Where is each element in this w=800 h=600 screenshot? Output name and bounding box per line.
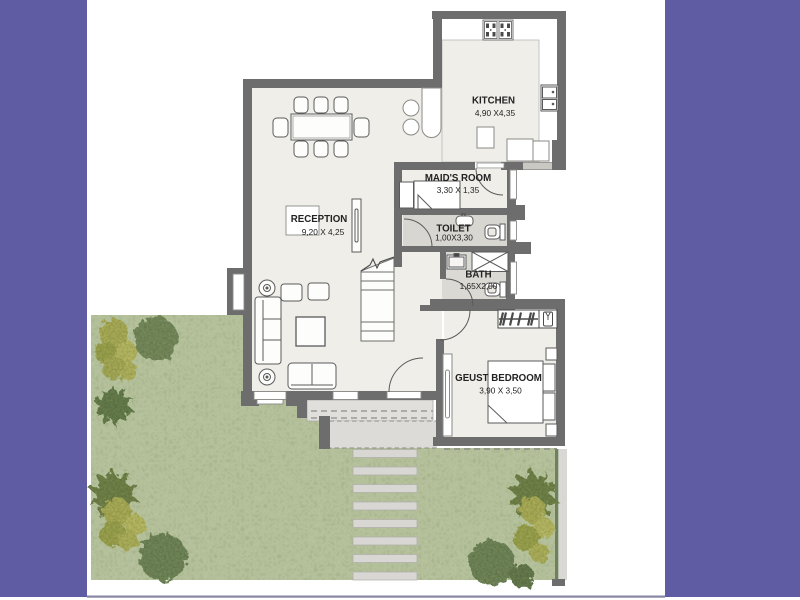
svg-text:1,00X3,30: 1,00X3,30 bbox=[435, 233, 473, 243]
svg-text:KITCHEN: KITCHEN bbox=[472, 96, 515, 107]
svg-text:3,30 X 1,35: 3,30 X 1,35 bbox=[437, 185, 480, 195]
svg-text:RECEPTION: RECEPTION bbox=[291, 214, 348, 225]
svg-text:9,20 X 4,25: 9,20 X 4,25 bbox=[302, 227, 345, 237]
svg-text:3,90 X 3,50: 3,90 X 3,50 bbox=[479, 386, 522, 396]
svg-text:4,90 X4,35: 4,90 X4,35 bbox=[475, 108, 516, 118]
svg-text:1,65X2,00: 1,65X2,00 bbox=[460, 281, 498, 291]
svg-text:GEUST BEDROOM: GEUST BEDROOM bbox=[455, 373, 542, 384]
svg-text:MAID'S ROOM: MAID'S ROOM bbox=[425, 173, 491, 184]
svg-text:BATH: BATH bbox=[465, 270, 491, 281]
